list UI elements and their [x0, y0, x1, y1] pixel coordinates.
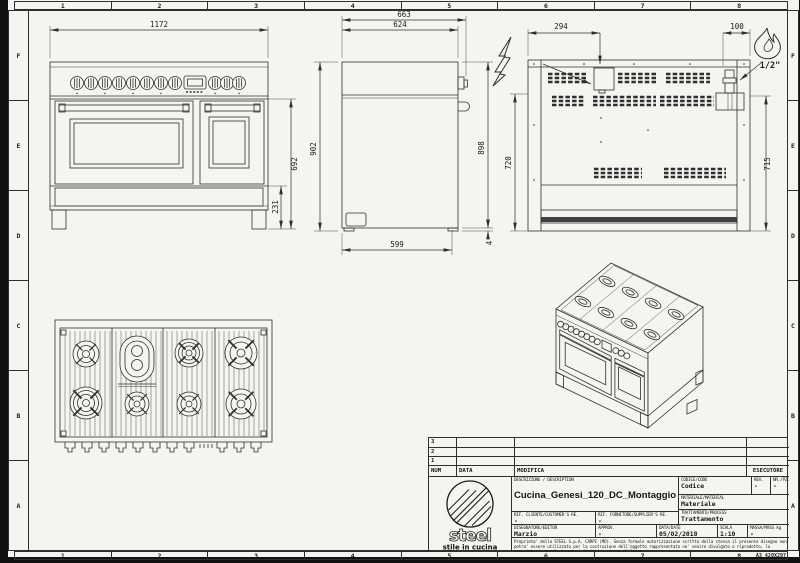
top-view	[55, 320, 272, 452]
front-knobs	[71, 77, 246, 95]
svg-text:294: 294	[554, 22, 568, 31]
svg-text:4: 4	[485, 240, 494, 245]
nr-pz-value: -	[771, 483, 789, 490]
front-display	[184, 76, 206, 92]
dim-rear-height-right: 715	[750, 96, 772, 231]
date-cell: DATA/DATE 05/02/2018	[656, 524, 717, 537]
revision-header-esecutore: ESECUTORE	[746, 465, 789, 476]
rear-electrical-box	[543, 64, 614, 93]
gas-thread-callout: 1/2"	[740, 61, 780, 80]
rif-cliente-cell: RIF. CLIENTE/CUSTOMER'S RE. -	[511, 511, 595, 524]
revision-row: 3	[429, 438, 789, 447]
svg-text:100: 100	[730, 22, 744, 31]
svg-text:231: 231	[271, 200, 280, 214]
front-right-foot	[252, 210, 266, 229]
dim-side-depth-body: 624	[342, 20, 458, 58]
legal-disclaimer: Proprieta' della STEEL S.p.A. CARPI (MO)…	[512, 538, 789, 552]
svg-text:902: 902	[309, 142, 318, 156]
dim-front-width: 1172	[50, 20, 268, 58]
revision-change	[514, 447, 746, 456]
revision-num: 3	[429, 438, 456, 447]
revision-executor	[746, 438, 789, 447]
rear-gas-inlet	[716, 70, 744, 110]
rear-vents	[548, 74, 726, 177]
revision-num: 2	[429, 447, 456, 456]
svg-text:898: 898	[477, 141, 486, 155]
rev-cell: REV. -	[751, 476, 770, 494]
dim-rear-gas-offset: 100	[723, 22, 750, 66]
side-rating-plate	[346, 213, 366, 226]
iso-rating-plate	[687, 400, 697, 415]
nr-pz-cell: NR./PZ. -	[770, 476, 789, 494]
revision-header-modifica: MODIFICA	[514, 465, 746, 476]
title-block: 3 2 1 NUM DATA MODIFICA ESECUTORE steel	[428, 437, 788, 551]
materiale-value: Materiale	[679, 501, 789, 508]
logo-cell: steel stile in cucina	[429, 476, 511, 552]
svg-text:720: 720	[504, 156, 513, 170]
side-gas-hook	[458, 102, 470, 111]
revision-num: 1	[429, 456, 456, 465]
top-view-knob-row	[65, 442, 261, 452]
isometric-view	[556, 263, 703, 428]
trattamento-cell: TRATTAMENTO/PROCESS Trattamento	[678, 509, 789, 524]
svg-text:663: 663	[397, 10, 411, 19]
flame-icon	[755, 28, 781, 59]
rif-fornitore-label: RIF. FORNITORE/SUPPLIER'S RE.	[596, 512, 678, 518]
dim-rear-height-left: 720	[504, 94, 528, 231]
side-view: 663 624 902 898 4 599	[309, 10, 494, 255]
front-left-foot	[52, 210, 66, 229]
drawing-title: Cucina_Genesi_120_DC_Montaggio	[512, 483, 678, 507]
revision-executor	[746, 456, 789, 465]
approv-cell: APPROV. -	[595, 524, 656, 537]
mass-cell: MASSA/MASS kg -	[747, 524, 789, 537]
dim-rear-electric-offset: 294	[528, 22, 600, 64]
svg-text:1/2": 1/2"	[760, 61, 780, 71]
codice-cell: CODICE/CODE Codice	[678, 476, 751, 494]
svg-text:599: 599	[390, 240, 404, 249]
dim-side-depth-base: 599	[342, 230, 452, 255]
revision-header-num: NUM	[429, 465, 456, 476]
rif-fornitore-cell: RIF. FORNITORE/SUPPLIER'S RE. -	[595, 511, 678, 524]
revision-row: 1	[429, 456, 789, 465]
trattamento-value: Trattamento	[679, 516, 789, 523]
scale-cell: SCALA 1:10	[717, 524, 747, 537]
disclaimer-cell: Proprieta' della STEEL S.p.A. CARPI (MO)…	[511, 537, 789, 552]
revision-date	[456, 456, 514, 465]
revision-header-data: DATA	[456, 465, 514, 476]
dim-side-height-total: 902	[309, 62, 338, 231]
description-cell: DESCRIZIONE / DESCRIPTION Cucina_Genesi_…	[511, 476, 678, 511]
front-right-oven-door	[200, 101, 264, 184]
svg-text:692: 692	[290, 157, 299, 171]
lightning-bolt-icon	[493, 37, 511, 86]
logo-tagline: stile in cucina	[443, 544, 498, 552]
revision-change	[514, 438, 746, 447]
steel-logo-icon: steel stile in cucina	[429, 477, 511, 552]
front-view: 1172 692 231	[50, 20, 299, 229]
revision-row: 2	[429, 447, 789, 456]
svg-text:624: 624	[393, 20, 407, 29]
disegnatore-cell: DISEGNATORE/EDITOR Marzio	[511, 524, 595, 537]
svg-text:715: 715	[763, 157, 772, 171]
codice-value: Codice	[679, 483, 751, 490]
rear-view: 294 100 720 715 1/2"	[504, 22, 780, 231]
side-rear-connector	[458, 77, 464, 89]
rev-value: -	[752, 483, 770, 490]
svg-text:1172: 1172	[150, 20, 168, 29]
front-left-oven-door	[55, 101, 193, 184]
revision-header-row: NUM DATA MODIFICA ESECUTORE	[429, 465, 789, 476]
revision-date	[456, 438, 514, 447]
revision-executor	[746, 447, 789, 456]
materiale-cell: MATERIALE/MATERIAL Materiale	[678, 494, 789, 509]
revision-date	[456, 447, 514, 456]
revision-change	[514, 456, 746, 465]
dim-front-plinth-height: 231	[266, 186, 287, 229]
dim-side-foot-gap: 4	[462, 222, 494, 245]
